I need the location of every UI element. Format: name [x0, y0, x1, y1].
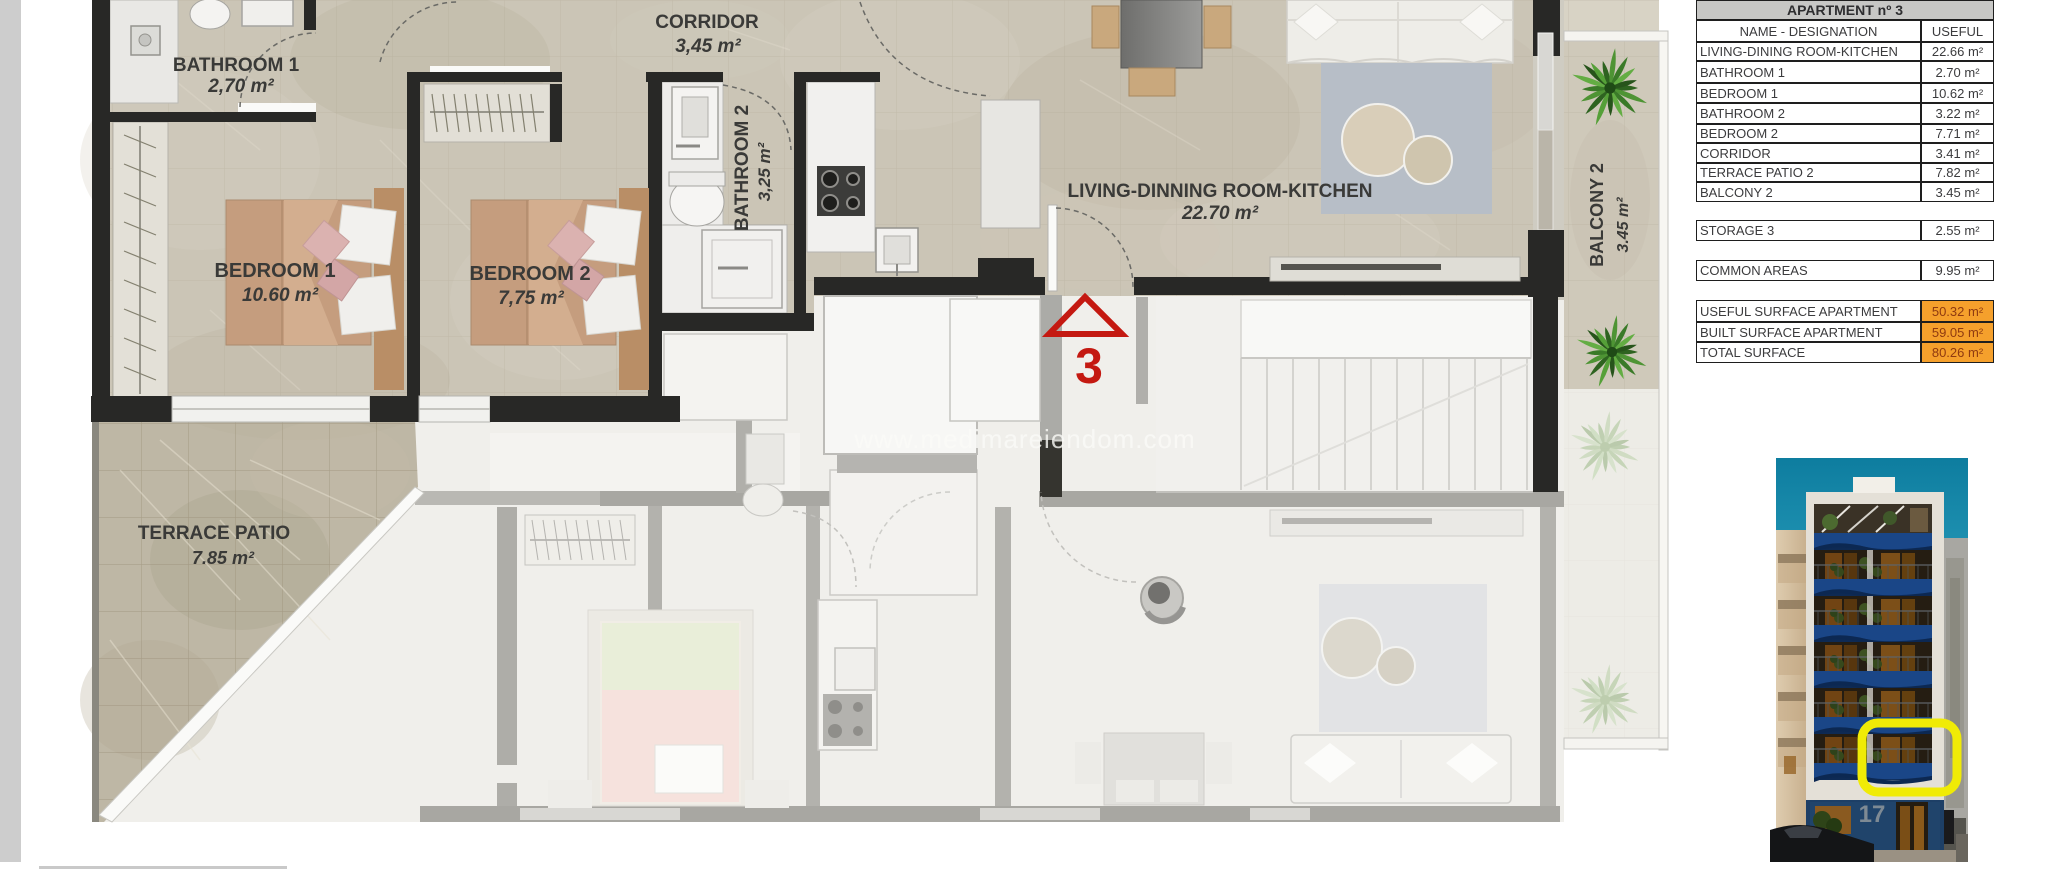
svg-text:7.85 m²: 7.85 m² [192, 548, 255, 568]
svg-text:3,45 m²: 3,45 m² [675, 36, 741, 57]
svg-text:LIVING-DINNING ROOM-KITCHEN: LIVING-DINNING ROOM-KITCHEN [1067, 181, 1372, 202]
svg-text:CORRIDOR: CORRIDOR [655, 12, 759, 33]
svg-text:BALCONY 2: BALCONY 2 [1587, 163, 1607, 267]
svg-text:10.60 m²: 10.60 m² [242, 285, 319, 306]
svg-text:17: 17 [1859, 801, 1886, 828]
svg-text:3.45 m²: 3.45 m² [1615, 197, 1632, 253]
svg-text:2,70 m²: 2,70 m² [207, 76, 274, 97]
svg-text:BATHROOM 2: BATHROOM 2 [732, 105, 753, 231]
svg-text:3,25 m²: 3,25 m² [755, 141, 774, 201]
svg-text:TERRACE PATIO: TERRACE PATIO [138, 523, 290, 544]
svg-text:www.medimareiendom.com: www.medimareiendom.com [853, 424, 1195, 454]
svg-text:22.70 m²: 22.70 m² [1181, 203, 1259, 224]
svg-text:BEDROOM 1: BEDROOM 1 [214, 260, 335, 282]
svg-text:BATHROOM 1: BATHROOM 1 [173, 55, 300, 76]
svg-text:BEDROOM 2: BEDROOM 2 [469, 263, 590, 285]
svg-text:7,75 m²: 7,75 m² [498, 288, 564, 309]
svg-text:3: 3 [1075, 338, 1103, 394]
